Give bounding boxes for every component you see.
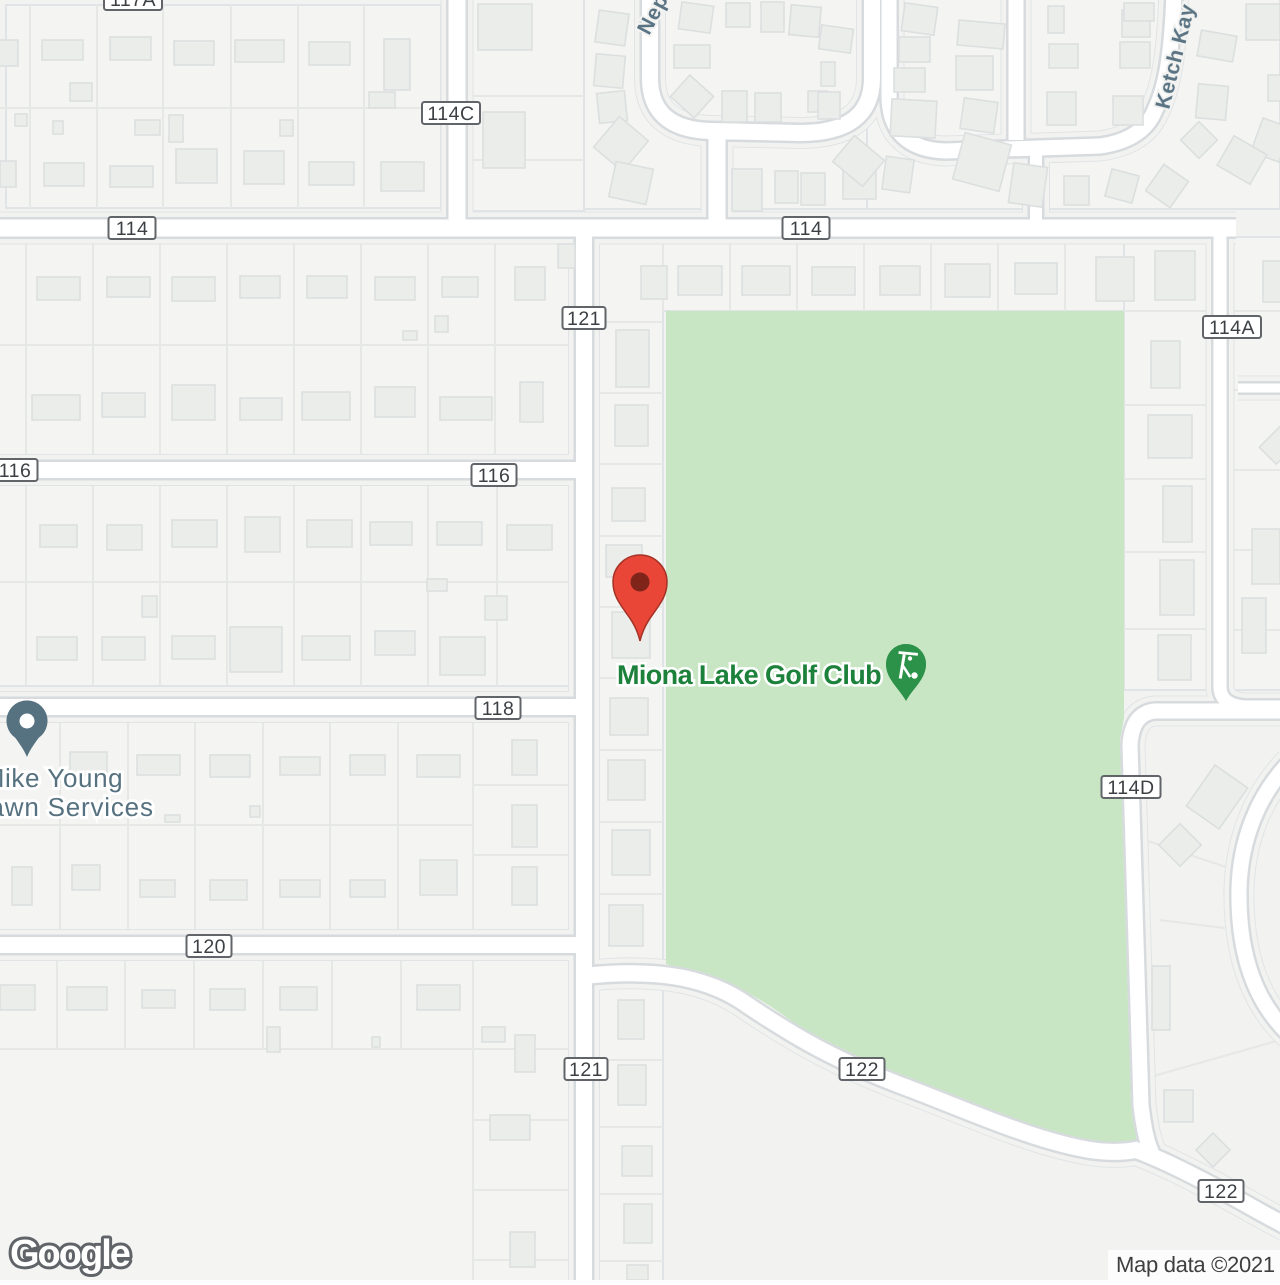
svg-text:117A: 117A (110, 0, 156, 11)
svg-text:118: 118 (482, 698, 515, 720)
svg-text:Google: Google (10, 1233, 130, 1275)
svg-text:121: 121 (567, 308, 601, 330)
svg-text:114A: 114A (1209, 317, 1255, 339)
svg-text:120: 120 (192, 936, 226, 958)
svg-text:114: 114 (790, 218, 823, 240)
svg-text:122: 122 (1204, 1181, 1238, 1203)
svg-text:116: 116 (0, 460, 31, 482)
svg-text:Miona Lake Golf Club: Miona Lake Golf Club (617, 660, 881, 690)
svg-text:114: 114 (116, 218, 149, 240)
svg-text:114C: 114C (427, 103, 474, 125)
svg-text:Mike Young: Mike Young (0, 763, 123, 793)
svg-text:116: 116 (478, 465, 511, 487)
svg-text:Map data ©2021: Map data ©2021 (1116, 1252, 1275, 1277)
svg-text:121: 121 (569, 1059, 603, 1081)
svg-text:114D: 114D (1107, 777, 1154, 799)
svg-text:Lawn Services: Lawn Services (0, 792, 154, 822)
svg-text:122: 122 (845, 1059, 879, 1081)
